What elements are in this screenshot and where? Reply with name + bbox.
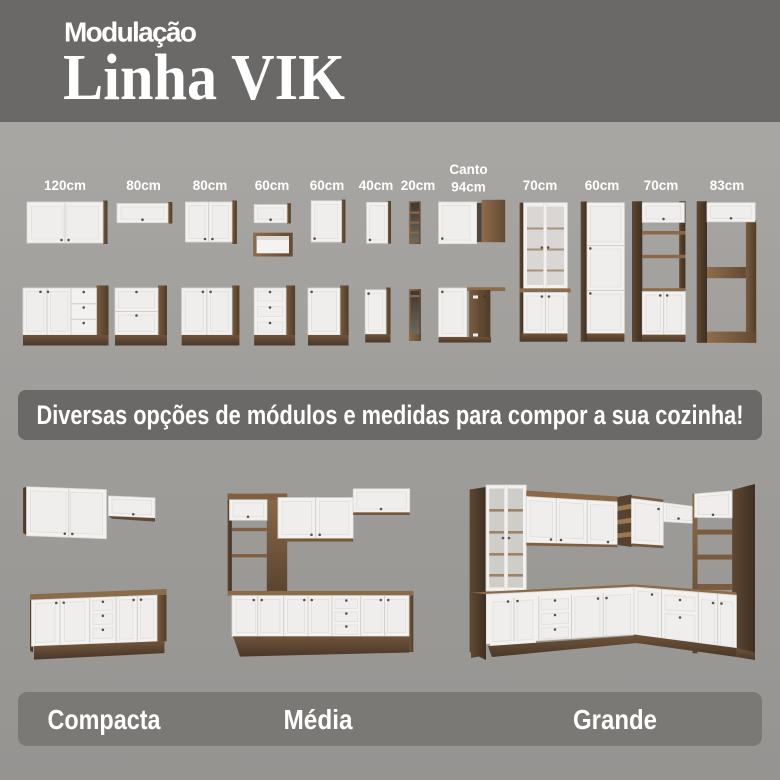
svg-text:40cm: 40cm	[359, 178, 394, 193]
svg-text:120cm: 120cm	[44, 178, 86, 193]
svg-text:94cm: 94cm	[451, 180, 486, 195]
svg-text:60cm: 60cm	[255, 178, 290, 193]
svg-text:20cm: 20cm	[401, 178, 436, 193]
svg-text:80cm: 80cm	[193, 178, 228, 193]
svg-text:60cm: 60cm	[585, 178, 620, 193]
svg-text:70cm: 70cm	[523, 178, 558, 193]
svg-text:Diversas opções de módulos e m: Diversas opções de módulos e medidas par…	[37, 400, 744, 430]
svg-text:70cm: 70cm	[644, 178, 679, 193]
svg-text:Compacta: Compacta	[48, 704, 161, 735]
svg-text:Média: Média	[284, 704, 353, 735]
svg-text:83cm: 83cm	[710, 178, 745, 193]
svg-text:Grande: Grande	[573, 704, 657, 735]
svg-text:Linha VIK: Linha VIK	[63, 41, 345, 114]
svg-text:80cm: 80cm	[126, 178, 161, 193]
svg-text:60cm: 60cm	[310, 178, 345, 193]
svg-text:Canto: Canto	[449, 162, 487, 177]
